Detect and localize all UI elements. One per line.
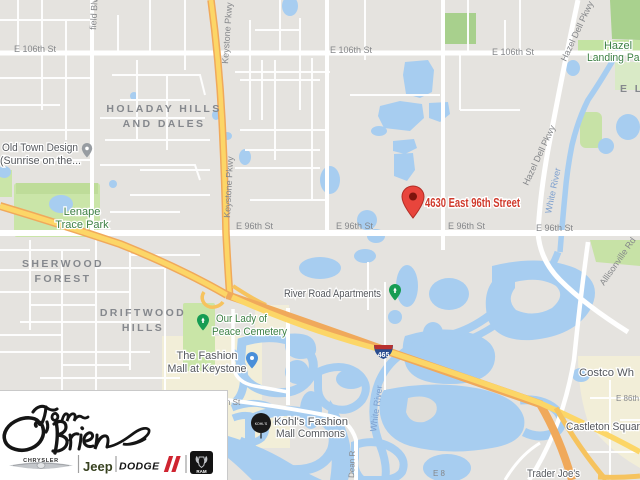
- svg-text:4630 East 96th Street: 4630 East 96th Street: [425, 196, 521, 210]
- svg-text:Our Lady of: Our Lady of: [216, 313, 268, 325]
- svg-text:SHERWOOD: SHERWOOD: [22, 258, 104, 270]
- svg-text:Kohl's Fashion: Kohl's Fashion: [274, 416, 348, 428]
- svg-text:Peace Cemetery: Peace Cemetery: [212, 326, 287, 338]
- svg-text:465: 465: [378, 352, 390, 359]
- svg-text:Costco Wh: Costco Wh: [579, 367, 634, 379]
- svg-text:AND DALES: AND DALES: [123, 118, 206, 130]
- svg-text:E 96th St: E 96th St: [536, 223, 574, 233]
- svg-text:Landing Par: Landing Par: [587, 52, 640, 64]
- svg-text:E 8: E 8: [433, 469, 446, 478]
- svg-text:Dean R: Dean R: [347, 450, 357, 478]
- svg-text:E 106th St: E 106th St: [14, 44, 57, 54]
- svg-text:Lenape: Lenape: [64, 206, 101, 218]
- svg-text:FOREST: FOREST: [35, 273, 92, 285]
- svg-text:Hazel: Hazel: [604, 40, 632, 52]
- svg-text:RAM: RAM: [196, 469, 206, 474]
- svg-text:DRIFTWOOD: DRIFTWOOD: [100, 307, 186, 319]
- svg-text:River Road Apartments: River Road Apartments: [284, 288, 381, 300]
- svg-text:E 106th St: E 106th St: [492, 47, 535, 57]
- svg-text:Trader Joe's: Trader Joe's: [527, 468, 580, 480]
- svg-text:field Blvd: field Blvd: [88, 0, 100, 30]
- svg-text:E L: E L: [620, 83, 640, 95]
- svg-text:Old Town Design: Old Town Design: [2, 142, 78, 154]
- svg-text:HOLADAY HILLS: HOLADAY HILLS: [106, 103, 221, 115]
- svg-text:E 96th St: E 96th St: [336, 221, 374, 231]
- svg-text:HILLS: HILLS: [122, 322, 164, 334]
- svg-text:(Sunrise on the...: (Sunrise on the...: [0, 155, 81, 167]
- svg-text:E 96th St: E 96th St: [236, 221, 274, 231]
- svg-text:Castleton Squar: Castleton Squar: [566, 421, 640, 433]
- svg-text:DODGE: DODGE: [119, 461, 160, 473]
- svg-text:E 96th St: E 96th St: [448, 221, 486, 231]
- svg-text:The Fashion: The Fashion: [177, 350, 238, 362]
- svg-text:Jeep: Jeep: [83, 459, 113, 474]
- svg-text:Mall Commons: Mall Commons: [276, 428, 345, 440]
- svg-text:E 106th St: E 106th St: [330, 45, 373, 55]
- svg-text:Mall at Keystone: Mall at Keystone: [168, 363, 247, 375]
- svg-text:Trace Park: Trace Park: [55, 219, 109, 231]
- svg-text:n St: n St: [226, 398, 241, 407]
- svg-text:E 86th St: E 86th St: [616, 394, 640, 403]
- svg-text:KOHL'S: KOHL'S: [255, 422, 268, 426]
